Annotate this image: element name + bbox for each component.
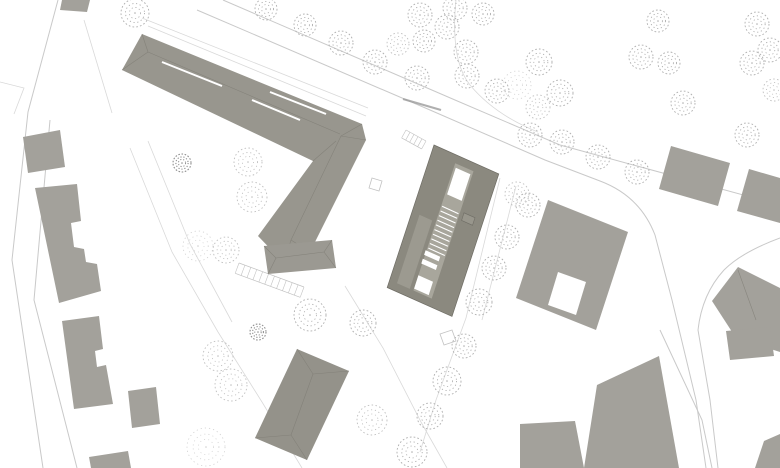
tree (586, 145, 610, 169)
tree-trunk-dot (446, 380, 448, 382)
tree (485, 79, 509, 103)
tree-trunk-dot (446, 26, 448, 28)
tree (503, 71, 531, 99)
tree-trunk-dot (597, 156, 599, 158)
tree (408, 3, 432, 27)
tree-trunk-dot (529, 134, 531, 136)
tree (121, 0, 149, 27)
street-name-label (403, 99, 441, 110)
tree (255, 0, 277, 20)
main-building-layer (387, 145, 499, 316)
tree-trunk-dot (538, 61, 540, 63)
tree (505, 182, 529, 206)
courtyard-west-walk-inner (148, 141, 232, 322)
tree (516, 193, 540, 217)
tree-trunk-dot (516, 193, 518, 195)
building-west-south (89, 451, 131, 468)
tree-trunk-dot (746, 134, 748, 136)
tree-trunk-dot (304, 24, 306, 26)
tree (387, 33, 409, 55)
tree-trunk-dot (496, 90, 498, 92)
tree (413, 30, 435, 52)
tree (472, 3, 494, 25)
tree-trunk-dot (561, 141, 563, 143)
tree-trunk-dot (516, 84, 518, 86)
tree (454, 40, 478, 64)
tree (671, 91, 695, 115)
tree-trunk-dot (247, 161, 249, 163)
labels-layer (403, 99, 441, 110)
building-southeast-small (726, 327, 774, 360)
site-plan-stage (0, 0, 780, 468)
building-west-annex (128, 387, 160, 428)
tree (357, 405, 387, 435)
tree (187, 428, 225, 466)
tree (294, 14, 316, 36)
entry-steps-main-building (402, 130, 426, 149)
tree-trunk-dot (493, 267, 495, 269)
plaza-square (440, 330, 456, 345)
tree-trunk-dot (397, 43, 399, 45)
park-path (455, 0, 538, 132)
tree-trunk-dot (205, 446, 207, 448)
tree (482, 256, 506, 280)
building-corner-southeast (755, 434, 780, 468)
south-plaza-walk (345, 286, 447, 468)
building-west-long (35, 184, 101, 303)
tree-trunk-dot (466, 75, 468, 77)
tree (213, 237, 239, 263)
tree-trunk-dot (429, 415, 431, 417)
tree (745, 12, 769, 36)
building-south-east-large (584, 356, 679, 468)
tree (763, 79, 780, 101)
tree (435, 15, 459, 39)
tree-trunk-dot (265, 8, 267, 10)
tree (215, 369, 247, 401)
tree-trunk-dot (419, 14, 421, 16)
tree (466, 289, 492, 315)
tree-trunk-dot (537, 106, 539, 108)
tree (735, 123, 759, 147)
tree (173, 154, 191, 172)
tree (658, 52, 680, 74)
tree (183, 231, 213, 261)
tree-trunk-dot (640, 56, 642, 58)
tree-trunk-dot (756, 23, 758, 25)
tree (647, 10, 669, 32)
west-plot-line (0, 82, 24, 114)
tree-trunk-dot (217, 355, 219, 357)
tree-trunk-dot (454, 7, 456, 9)
tree-trunk-dot (230, 384, 232, 386)
tree (417, 403, 443, 429)
tree-trunk-dot (362, 322, 364, 324)
building-south-hipped (255, 349, 349, 460)
tree-trunk-dot (197, 245, 199, 247)
tree-trunk-dot (465, 51, 467, 53)
tree-trunk-dot (682, 102, 684, 104)
tree (629, 45, 653, 69)
tree (234, 148, 262, 176)
tree-trunk-dot (257, 331, 259, 333)
building-l-block (122, 34, 366, 263)
building-annex-bar (264, 240, 336, 274)
building-south-east-arm (520, 421, 584, 468)
playground-square (369, 178, 382, 191)
tree (203, 341, 233, 371)
tree (547, 80, 573, 106)
tree (740, 51, 764, 75)
tree (294, 299, 326, 331)
tree-trunk-dot (416, 77, 418, 79)
building-northeast (659, 146, 730, 206)
tree-trunk-dot (251, 196, 253, 198)
tree-trunk-dot (181, 162, 183, 164)
tree-trunk-dot (134, 12, 136, 14)
tree-trunk-dot (371, 419, 373, 421)
tree (405, 66, 429, 90)
tree-trunk-dot (225, 249, 227, 251)
building-main-new (387, 145, 499, 316)
building-east-edge (737, 169, 780, 223)
tree-trunk-dot (482, 13, 484, 15)
tree (495, 225, 519, 249)
tree-trunk-dot (559, 92, 561, 94)
tree (526, 49, 552, 75)
tree (433, 367, 461, 395)
tree-trunk-dot (309, 314, 311, 316)
tree (518, 123, 542, 147)
tree-trunk-dot (506, 236, 508, 238)
plot-line-northwest (84, 20, 112, 113)
tree-trunk-dot (751, 62, 753, 64)
building-west-small (23, 130, 65, 173)
buildings-layer (23, 0, 780, 468)
tree-trunk-dot (773, 89, 775, 91)
tree-trunk-dot (657, 20, 659, 22)
tree-trunk-dot (423, 40, 425, 42)
tree (250, 324, 266, 340)
tree-trunk-dot (636, 171, 638, 173)
tree-trunk-dot (411, 451, 413, 453)
building-west-mid (62, 316, 113, 409)
tree-trunk-dot (340, 42, 342, 44)
tree-trunk-dot (463, 345, 465, 347)
tree (455, 64, 479, 88)
tree-trunk-dot (374, 61, 376, 63)
tree (526, 95, 550, 119)
building-east-large-stair-bump (580, 266, 593, 279)
building-top-edge-small (60, 0, 90, 12)
tree (397, 437, 427, 467)
tree (625, 160, 649, 184)
tree-trunk-dot (527, 204, 529, 206)
tree (237, 182, 267, 212)
tree-trunk-dot (478, 301, 480, 303)
tree (758, 38, 780, 62)
tree-trunk-dot (668, 62, 670, 64)
tree (350, 310, 376, 336)
tree-trunk-dot (769, 49, 771, 51)
site-plan-canvas (0, 0, 780, 468)
